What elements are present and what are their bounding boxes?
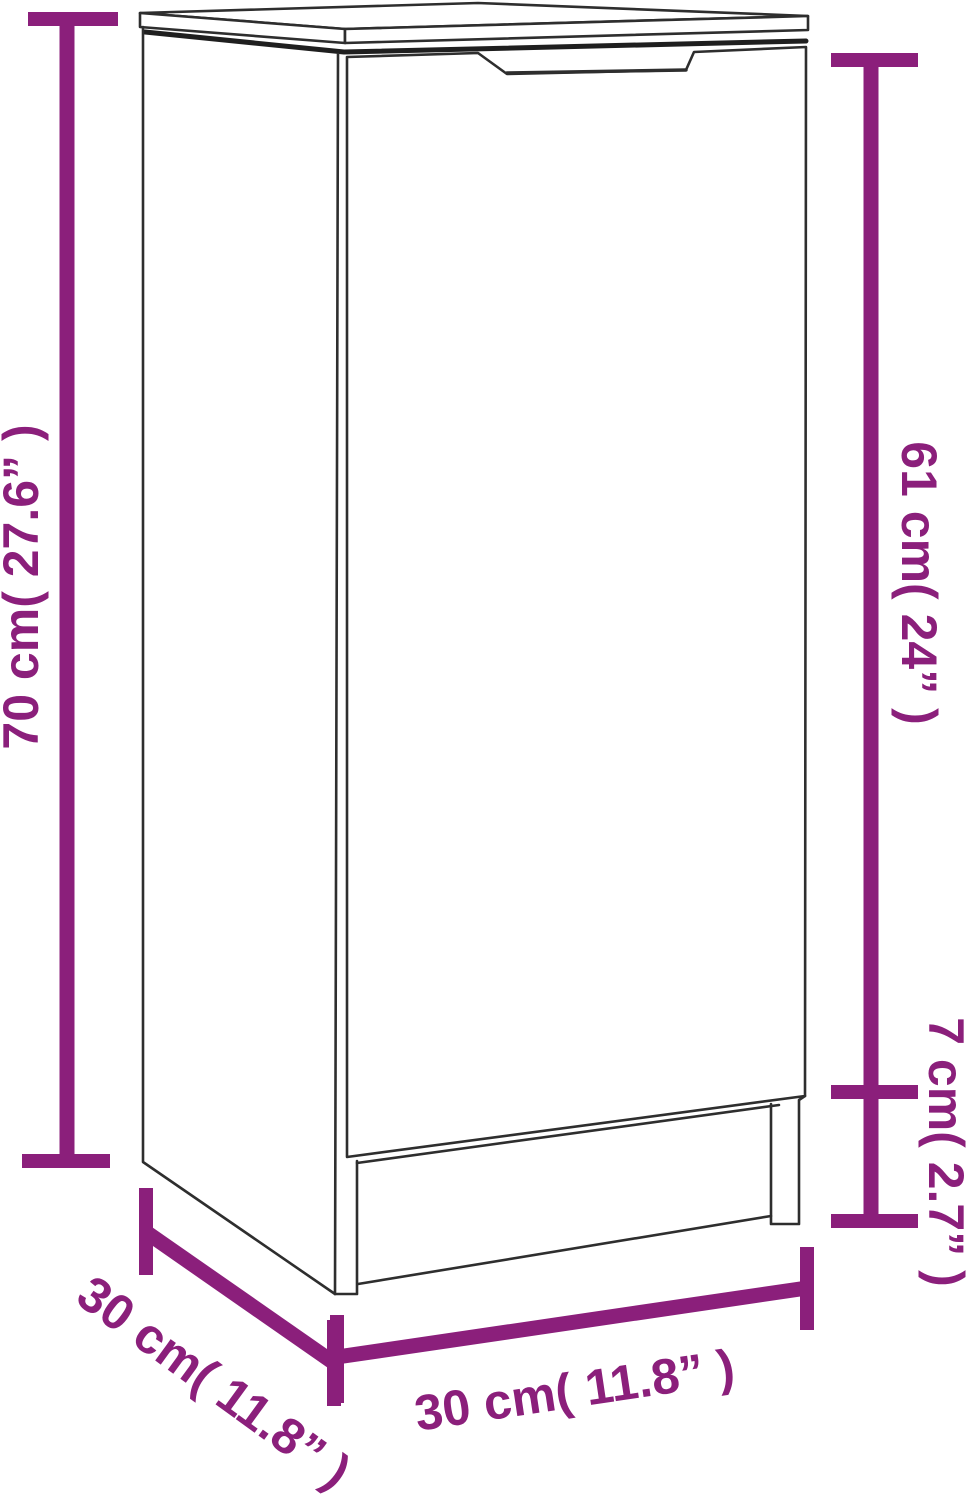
dimension-height-total: 70 cm( 27.6” ) — [0, 19, 118, 1161]
cabinet-left-side-panel — [143, 27, 338, 1294]
dimension-height-right: 61 cm( 24” ) 7 cm( 2.7” ) — [831, 60, 972, 1287]
dimension-line — [337, 1288, 807, 1357]
dimension-label-height-base: 7 cm( 2.7” ) — [918, 1017, 972, 1287]
dimension-label-height-door: 61 cm( 24” ) — [891, 441, 947, 724]
dimension-label-width: 30 cm( 11.8” ) — [411, 1339, 738, 1442]
dimension-depth: 30 cm( 11.8” ) — [67, 1188, 361, 1500]
cabinet-left-leg — [335, 1161, 357, 1294]
cabinet-plinth-bottom-edge — [358, 1216, 771, 1284]
dimension-label-height-total: 70 cm( 27.6” ) — [0, 424, 49, 749]
cabinet-drawing — [140, 3, 808, 1294]
cabinet-dimension-drawing: 70 cm( 27.6” ) 61 cm( 24” ) 7 cm( 2.7” )… — [0, 0, 972, 1500]
product-dimension-diagram: 70 cm( 27.6” ) 61 cm( 24” ) 7 cm( 2.7” )… — [0, 0, 972, 1500]
dimension-label-depth: 30 cm( 11.8” ) — [67, 1265, 361, 1500]
cabinet-right-leg — [771, 1096, 805, 1224]
cabinet-door — [347, 47, 806, 1157]
